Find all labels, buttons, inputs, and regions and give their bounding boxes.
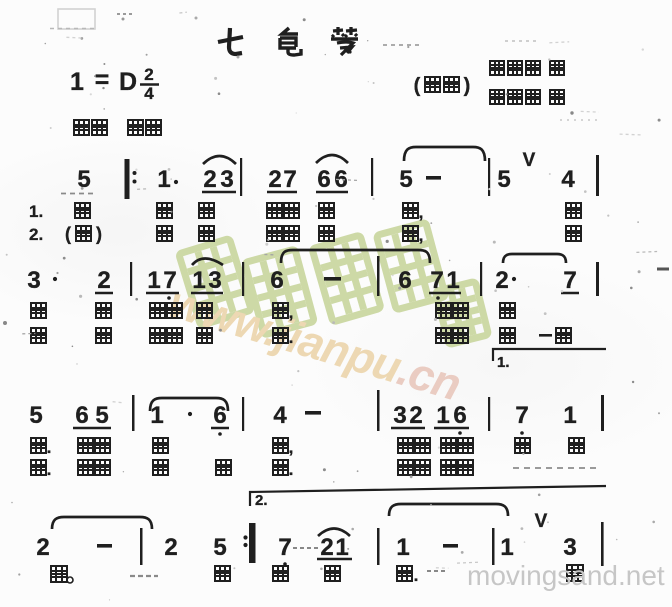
svg-text:7: 7 <box>163 267 176 294</box>
svg-text:2: 2 <box>97 267 110 294</box>
svg-text:.: . <box>47 438 52 457</box>
svg-text:): ) <box>96 224 102 244</box>
svg-text:1.: 1. <box>29 202 43 221</box>
svg-text:7: 7 <box>430 267 443 294</box>
svg-text:7: 7 <box>283 166 296 193</box>
svg-text:D: D <box>119 68 137 96</box>
svg-text:1: 1 <box>396 534 409 561</box>
svg-text:3: 3 <box>393 402 406 429</box>
svg-text:.: . <box>414 566 419 585</box>
svg-text:6: 6 <box>213 402 226 429</box>
svg-text:3: 3 <box>27 267 40 294</box>
svg-text:7: 7 <box>563 267 576 294</box>
svg-text:1: 1 <box>147 267 160 294</box>
svg-text:3: 3 <box>563 534 576 561</box>
svg-text:2: 2 <box>320 534 333 561</box>
svg-text:1: 1 <box>436 402 449 429</box>
svg-text:1: 1 <box>335 534 348 561</box>
svg-text:6: 6 <box>270 267 283 294</box>
svg-text:1: 1 <box>500 534 513 561</box>
svg-text:2: 2 <box>164 534 177 561</box>
svg-text:(: ( <box>414 75 421 97</box>
svg-text:.: . <box>47 460 52 479</box>
svg-text:,: , <box>289 438 294 457</box>
svg-text:5: 5 <box>77 166 90 193</box>
svg-text:6: 6 <box>317 166 330 193</box>
svg-text:1: 1 <box>150 402 163 429</box>
svg-text:5: 5 <box>497 166 510 193</box>
svg-text:6: 6 <box>398 267 411 294</box>
svg-text:7: 7 <box>515 402 528 429</box>
svg-text:7: 7 <box>278 534 291 561</box>
svg-text:2: 2 <box>36 534 49 561</box>
svg-text:5: 5 <box>399 166 412 193</box>
svg-text:2: 2 <box>203 166 216 193</box>
svg-text:.: . <box>289 328 294 347</box>
svg-text:5: 5 <box>213 534 226 561</box>
svg-text:5: 5 <box>95 402 108 429</box>
svg-text:3: 3 <box>208 267 221 294</box>
svg-text:2.: 2. <box>29 225 43 244</box>
svg-text:4: 4 <box>273 402 287 429</box>
svg-text:4: 4 <box>144 84 154 103</box>
svg-text:,: , <box>419 203 424 222</box>
svg-text:2: 2 <box>409 402 422 429</box>
svg-text:2: 2 <box>144 65 153 84</box>
svg-text:V: V <box>535 511 548 532</box>
svg-text:3: 3 <box>220 166 233 193</box>
svg-text:,: , <box>289 303 294 322</box>
svg-text:1.: 1. <box>497 354 510 371</box>
svg-text:6: 6 <box>75 402 88 429</box>
svg-text:V: V <box>523 150 536 171</box>
svg-text:2: 2 <box>268 166 281 193</box>
svg-text:1: 1 <box>70 68 84 96</box>
svg-text:1: 1 <box>563 402 576 429</box>
svg-text:): ) <box>464 75 471 97</box>
svg-text:,: , <box>419 226 424 245</box>
svg-text:(: ( <box>65 224 71 244</box>
svg-text:4: 4 <box>561 166 575 193</box>
svg-text:1: 1 <box>192 267 205 294</box>
svg-text:=: = <box>95 66 110 94</box>
svg-text:6: 6 <box>453 402 466 429</box>
svg-text:.: . <box>289 460 294 479</box>
svg-text:2: 2 <box>495 267 508 294</box>
svg-text:2.: 2. <box>255 492 268 509</box>
svg-text:1: 1 <box>446 267 459 294</box>
svg-text:5: 5 <box>29 402 42 429</box>
